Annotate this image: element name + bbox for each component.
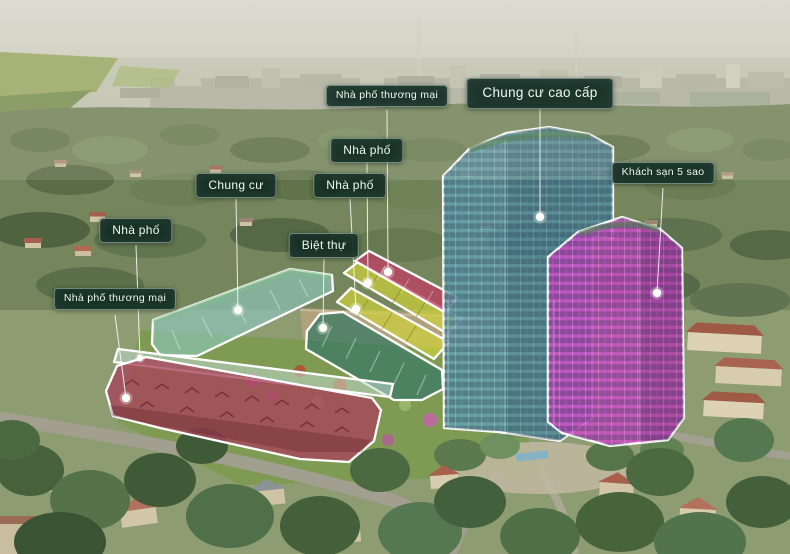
masterplan-aerial-view: Nhà phố thương mại Chung cư cao cấp Nhà …	[0, 0, 790, 554]
marker-townhouse-lower[interactable]	[350, 303, 363, 316]
marker-townhouse-upper[interactable]	[362, 277, 375, 290]
marker-apartment-tower[interactable]	[534, 211, 547, 224]
marker-shophouse-strip[interactable]	[382, 266, 395, 279]
label-premium-apartment[interactable]: Chung cư cao cấp	[466, 78, 613, 109]
aerial-scene	[0, 0, 790, 554]
marker-hotel-tower[interactable]	[651, 287, 664, 300]
marker-townhouse-back[interactable]	[135, 353, 145, 363]
zone-hotel-tower	[548, 217, 684, 446]
label-townhouse-upper[interactable]: Nhà phố	[330, 138, 403, 163]
marker-villa[interactable]	[317, 322, 330, 335]
label-villa[interactable]: Biệt thự	[289, 233, 359, 258]
label-townhouse-left[interactable]: Nhà phố	[99, 218, 172, 243]
marker-apartment-block[interactable]	[232, 304, 245, 317]
label-five-star-hotel[interactable]: Khách sạn 5 sao	[612, 162, 715, 184]
label-shophouse-commercial-left[interactable]: Nhà phố thương mại	[54, 288, 176, 310]
label-townhouse-lower[interactable]: Nhà phố	[313, 173, 386, 198]
label-apartment[interactable]: Chung cư	[195, 173, 276, 198]
label-shophouse-commercial-top[interactable]: Nhà phố thương mại	[326, 85, 448, 107]
marker-shophouse-row[interactable]	[120, 392, 133, 405]
